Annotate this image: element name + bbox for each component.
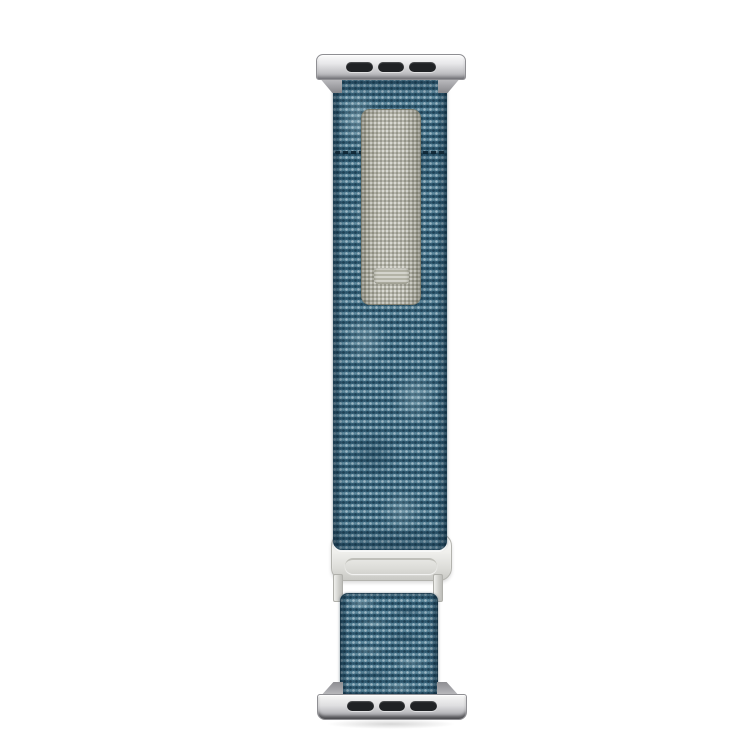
bottom-adapter-slot-left (347, 701, 374, 711)
bottom-adapter-slot-center (379, 701, 405, 711)
top-adapter-slot-right (409, 62, 436, 72)
bottom-adapter-slot-right (410, 701, 437, 711)
strap-lower (340, 593, 438, 695)
strap-lower-edge-shading (340, 593, 438, 695)
top-adapter-slot-center (378, 62, 404, 72)
bottom-lug-adapter (317, 694, 467, 720)
ground-shadow (326, 719, 456, 729)
patch-label-tab (374, 268, 409, 284)
product-photo-stage (0, 0, 750, 750)
top-lug-adapter (316, 54, 466, 80)
hook-loop-patch (361, 109, 421, 305)
top-adapter-slot-left (346, 62, 373, 72)
buckle-groove (345, 558, 437, 574)
